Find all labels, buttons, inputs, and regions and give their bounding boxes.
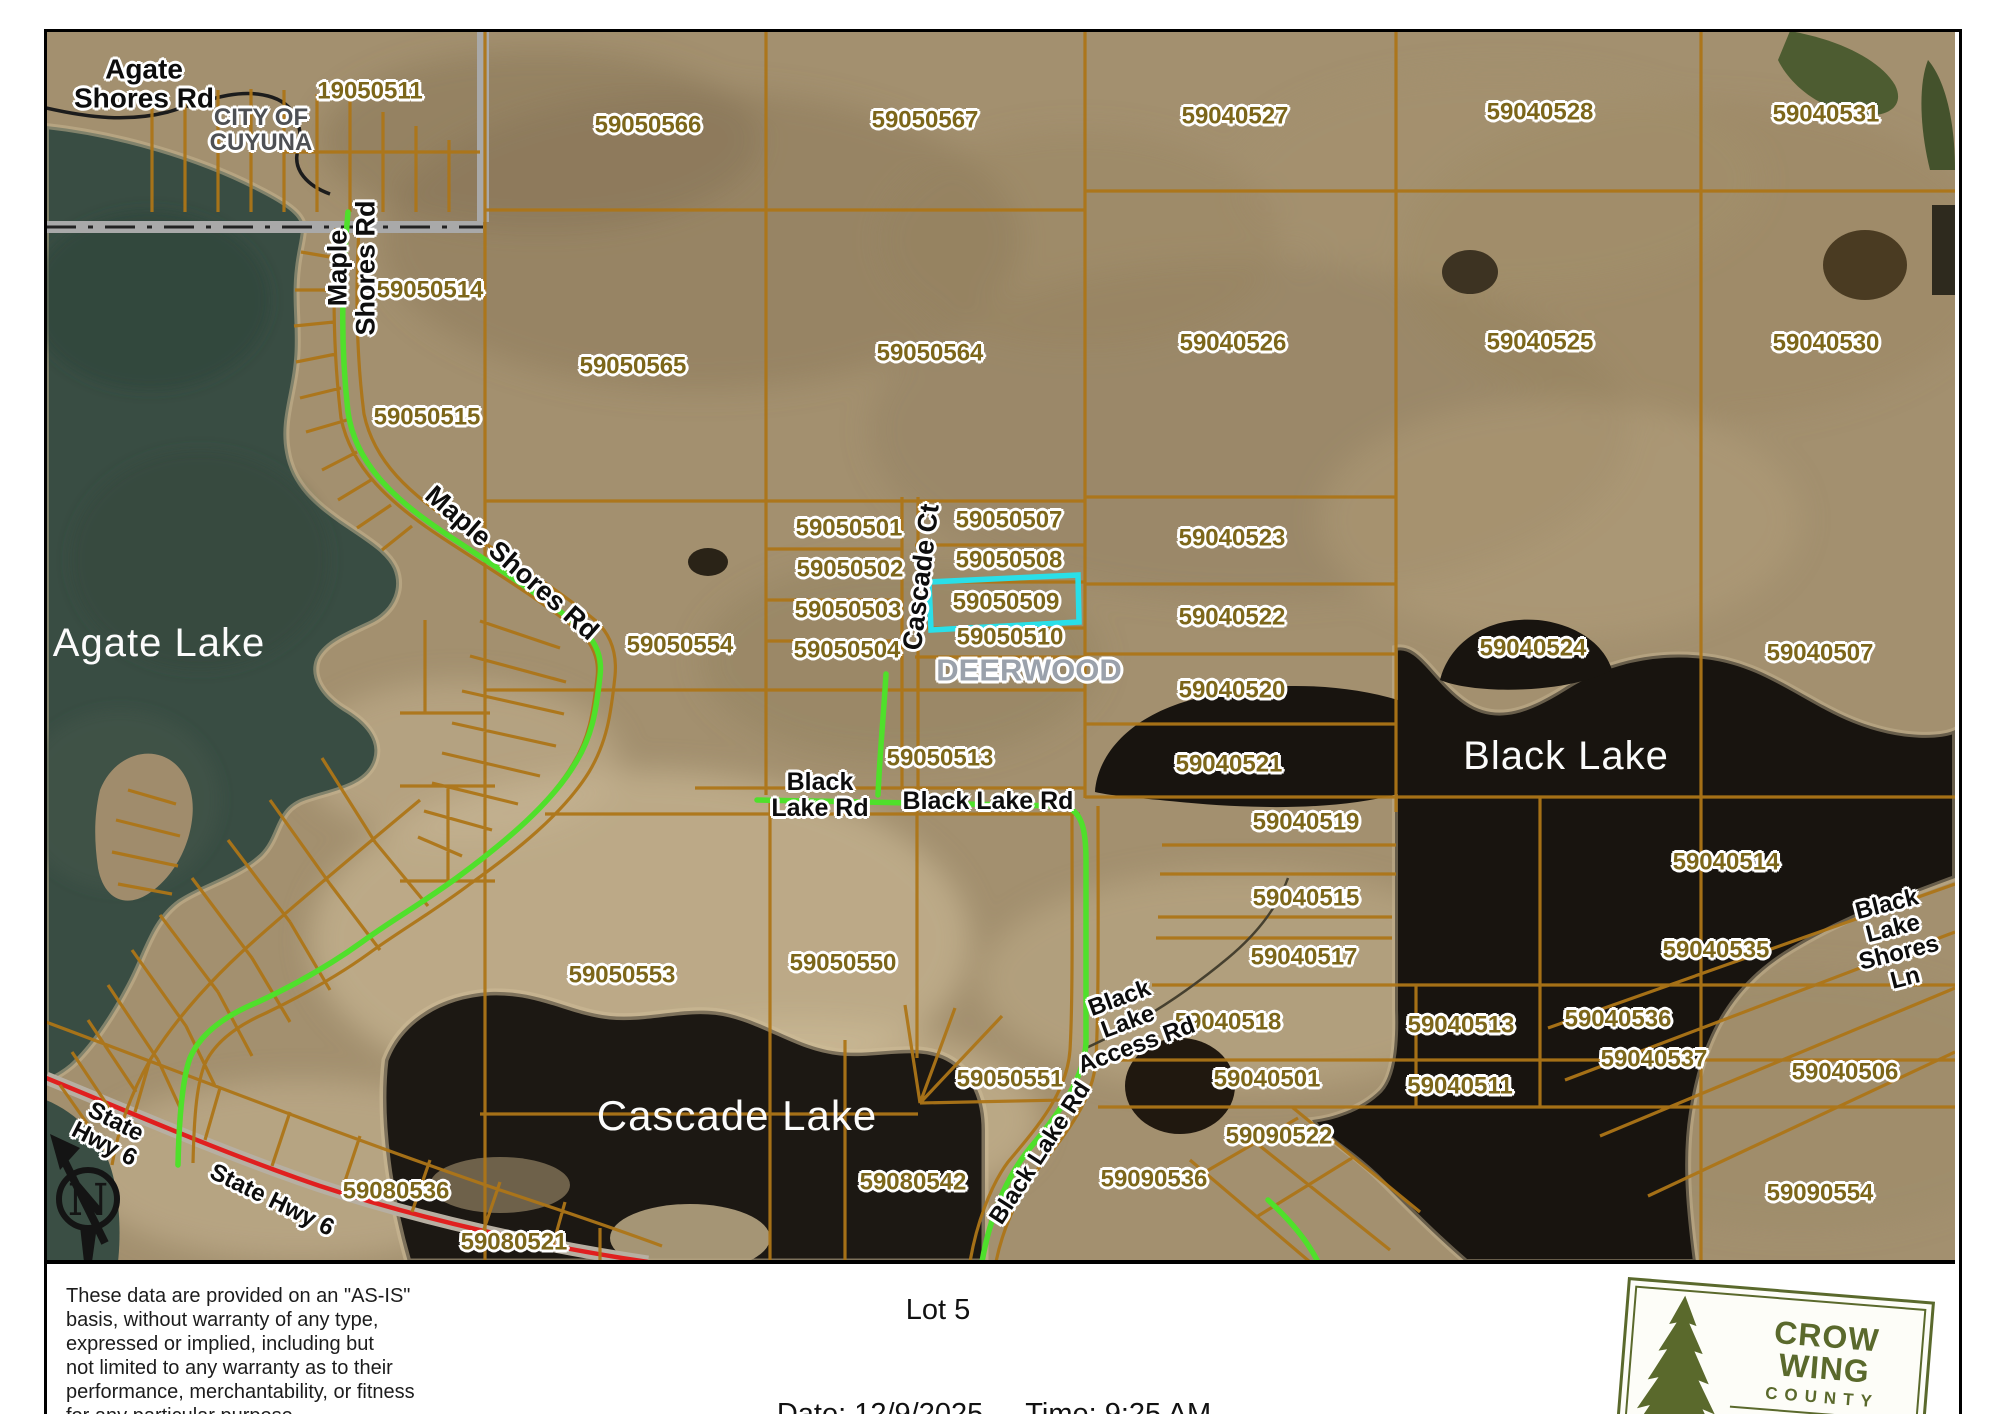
page-border bbox=[44, 29, 1962, 1414]
map-print-page: N 19050511590505665905056759040527590405… bbox=[0, 0, 2000, 1414]
